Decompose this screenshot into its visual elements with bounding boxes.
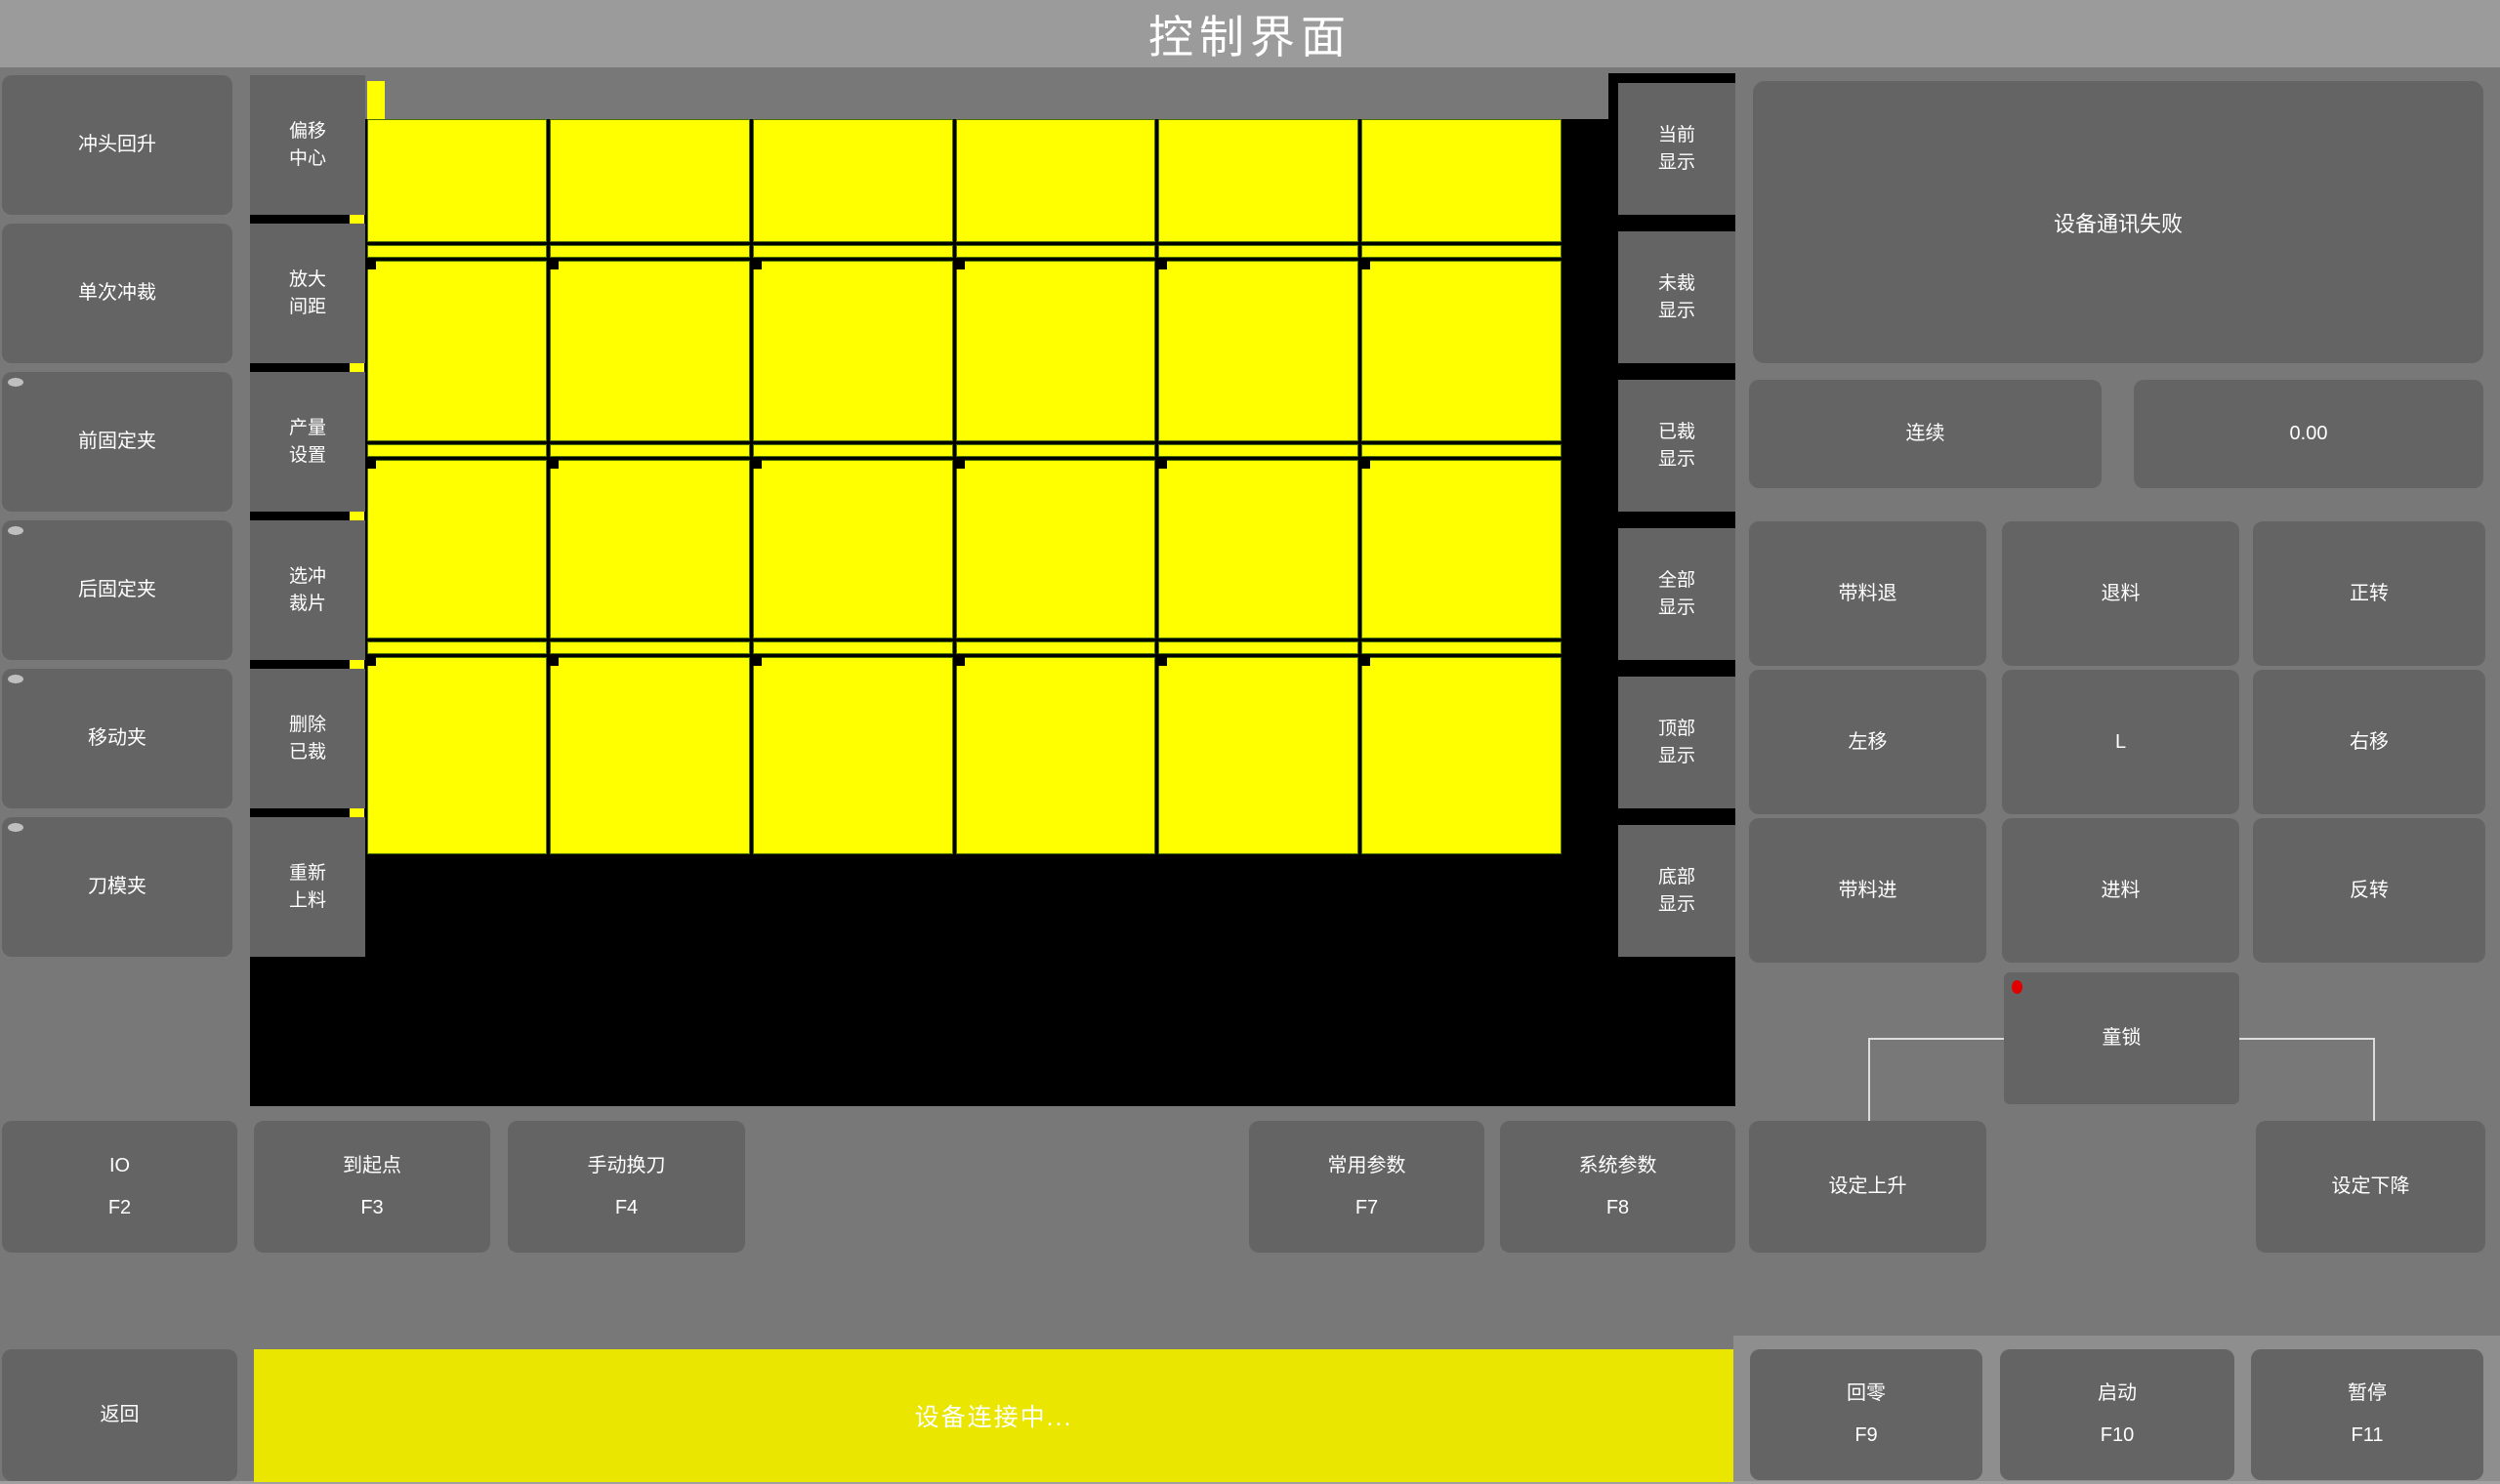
button-label: 设定上升 — [1829, 1173, 1907, 1201]
lock-indicator-red-dot — [2012, 980, 2022, 994]
indicator-dot — [8, 675, 23, 683]
button-fkey: F9 — [1854, 1422, 1877, 1450]
material-piece[interactable] — [1361, 119, 1562, 242]
set-rise-button[interactable]: 设定上升 — [1749, 1121, 1986, 1253]
move-left-button[interactable]: 左移 — [1749, 670, 1986, 814]
scrap-strip[interactable] — [550, 444, 750, 457]
child-lock-button[interactable]: 童锁 — [2004, 972, 2239, 1104]
material-top-notch — [367, 81, 385, 119]
material-piece[interactable] — [1158, 657, 1358, 854]
button-label: 常用参数 — [1328, 1152, 1406, 1180]
scrap-strip[interactable] — [550, 245, 750, 258]
select-piece-button[interactable]: 选冲 裁片 — [250, 520, 365, 660]
material-piece[interactable] — [550, 119, 750, 242]
button-label: 放大 间距 — [289, 267, 326, 320]
button-label: 右移 — [2350, 728, 2389, 757]
set-fall-button[interactable]: 设定下降 — [2256, 1121, 2485, 1253]
button-label: 后固定夹 — [78, 576, 156, 604]
reload-material-button[interactable]: 重新 上料 — [250, 817, 365, 957]
button-label: 单次冲裁 — [78, 279, 156, 308]
button-label: 暂停 — [2348, 1380, 2387, 1408]
button-label: 到起点 — [343, 1152, 401, 1180]
indicator-dot — [8, 378, 23, 387]
scrap-strip[interactable] — [367, 245, 547, 258]
button-label: 已裁 显示 — [1658, 419, 1695, 473]
button-label: 设定下降 — [2332, 1173, 2410, 1201]
strip-back-button[interactable]: 带料退 — [1749, 521, 1986, 666]
button-label: 反转 — [2350, 877, 2389, 905]
front-clamp-button[interactable]: 前固定夹 — [2, 372, 232, 512]
material-piece[interactable] — [367, 261, 547, 441]
button-label: 回零 — [1847, 1380, 1886, 1408]
button-label: 冲头回升 — [78, 131, 156, 159]
l-button[interactable]: L — [2002, 670, 2239, 814]
wire-right-horizontal — [2239, 1038, 2375, 1040]
connection-status-text: 设备连接中... — [915, 1398, 1073, 1433]
button-label: 刀模夹 — [88, 873, 146, 901]
material-piece[interactable] — [956, 460, 1156, 639]
button-label: IO — [109, 1152, 130, 1180]
material-piece[interactable] — [550, 460, 750, 639]
button-label: 带料进 — [1839, 877, 1897, 905]
layout-canvas — [250, 73, 1735, 1106]
button-label: 童锁 — [2103, 1024, 2142, 1052]
eject-material-button[interactable]: 退料 — [2002, 521, 2239, 666]
moving-clamp-button[interactable]: 移动夹 — [2, 669, 232, 808]
button-label: 连续 — [1906, 420, 1945, 448]
indicator-dot — [8, 823, 23, 832]
scrap-strip[interactable] — [550, 641, 750, 654]
indicator-dot — [8, 526, 23, 535]
scrap-strip[interactable] — [956, 245, 1156, 258]
pieces-grid[interactable] — [367, 119, 1562, 854]
button-label: 顶部 显示 — [1658, 716, 1695, 769]
material-piece[interactable] — [1361, 657, 1562, 854]
button-label: 底部 显示 — [1658, 864, 1695, 918]
scrap-strip[interactable] — [367, 444, 547, 457]
button-label: 未裁 显示 — [1658, 270, 1695, 324]
button-label: 进料 — [2102, 877, 2141, 905]
material-piece[interactable] — [1361, 460, 1562, 639]
button-fkey: F2 — [108, 1194, 131, 1222]
button-label: 返回 — [101, 1401, 140, 1429]
material-piece[interactable] — [753, 460, 953, 639]
button-fkey: F7 — [1355, 1194, 1378, 1222]
move-right-button[interactable]: 右移 — [2253, 670, 2485, 814]
feed-material-button[interactable]: 进料 — [2002, 818, 2239, 963]
material-piece[interactable] — [367, 657, 547, 854]
material-piece[interactable] — [753, 119, 953, 242]
material-piece[interactable] — [956, 657, 1156, 854]
material-piece[interactable] — [367, 460, 547, 639]
common-params-f7-button[interactable]: 常用参数 F7 — [1249, 1121, 1484, 1253]
button-label: 产量 设置 — [289, 415, 326, 469]
reverse-rotate-button[interactable]: 反转 — [2253, 818, 2485, 963]
scrap-strip[interactable] — [1158, 444, 1358, 457]
wire-right-vertical — [2373, 1038, 2375, 1121]
start-f10-button[interactable]: 启动 F10 — [2000, 1349, 2234, 1480]
button-label: 带料退 — [1839, 580, 1897, 608]
scrap-strip[interactable] — [956, 444, 1156, 457]
button-fkey: F4 — [615, 1194, 638, 1222]
scrap-strip[interactable] — [753, 444, 953, 457]
strip-feed-button[interactable]: 带料进 — [1749, 818, 1986, 963]
home-f9-button[interactable]: 回零 F9 — [1750, 1349, 1982, 1480]
button-fkey: F11 — [2352, 1422, 2384, 1450]
control-screen: 控制界面 冲头回升 单次冲裁 前固定夹 后固定夹 移动夹 刀模夹 偏移 中心 放… — [0, 0, 2500, 1484]
button-fkey: F10 — [2101, 1422, 2134, 1450]
io-f2-button[interactable]: IO F2 — [2, 1121, 237, 1253]
material-piece[interactable] — [1158, 460, 1358, 639]
system-params-f8-button[interactable]: 系统参数 F8 — [1500, 1121, 1735, 1253]
value-display[interactable]: 0.00 — [2134, 380, 2483, 488]
button-label: 重新 上料 — [289, 860, 326, 914]
page-title: 控制界面 — [1148, 2, 1352, 66]
output-settings-button[interactable]: 产量 设置 — [250, 372, 365, 512]
single-punch-button[interactable]: 单次冲裁 — [2, 224, 232, 363]
button-label: 左移 — [1849, 728, 1888, 757]
button-label: 系统参数 — [1579, 1152, 1657, 1180]
button-label: 移动夹 — [88, 724, 146, 753]
zoom-spacing-button[interactable]: 放大 间距 — [250, 224, 365, 363]
show-all-button[interactable]: 全部 显示 — [1618, 528, 1735, 660]
scrap-strip[interactable] — [753, 245, 953, 258]
scrap-strip[interactable] — [1361, 444, 1562, 457]
button-label: 删除 已裁 — [289, 712, 326, 765]
value-text: 0.00 — [2290, 420, 2328, 448]
button-label: 启动 — [2098, 1380, 2137, 1408]
back-button[interactable]: 返回 — [2, 1349, 237, 1481]
material-piece[interactable] — [367, 119, 547, 242]
material-piece[interactable] — [1158, 119, 1358, 242]
scrap-strip[interactable] — [1361, 641, 1562, 654]
button-label: 正转 — [2350, 580, 2389, 608]
button-label: 偏移 中心 — [289, 118, 326, 172]
button-label: L — [2115, 728, 2126, 757]
show-current-button[interactable]: 当前 显示 — [1618, 83, 1735, 215]
material-piece[interactable] — [956, 119, 1156, 242]
button-label: 退料 — [2102, 580, 2141, 608]
material-piece[interactable] — [753, 657, 953, 854]
button-label: 当前 显示 — [1658, 122, 1695, 176]
show-bottom-button[interactable]: 底部 显示 — [1618, 825, 1735, 957]
delete-cut-button[interactable]: 删除 已裁 — [250, 669, 365, 808]
button-label: 手动换刀 — [588, 1152, 666, 1180]
forward-rotate-button[interactable]: 正转 — [2253, 521, 2485, 666]
button-label: 选冲 裁片 — [289, 563, 326, 617]
scrap-strip[interactable] — [1158, 245, 1358, 258]
status-message-text: 设备通讯失败 — [2054, 207, 2183, 238]
material-piece[interactable] — [550, 261, 750, 441]
show-uncut-button[interactable]: 未裁 显示 — [1618, 231, 1735, 363]
material-piece[interactable] — [1158, 261, 1358, 441]
scrap-strip[interactable] — [1361, 245, 1562, 258]
show-cut-button[interactable]: 已裁 显示 — [1618, 380, 1735, 512]
material-piece[interactable] — [753, 261, 953, 441]
connection-status-bar: 设备连接中... — [254, 1349, 1733, 1482]
offset-center-button[interactable]: 偏移 中心 — [250, 75, 365, 215]
wire-left-vertical — [1868, 1038, 1870, 1121]
scrap-strip[interactable] — [956, 641, 1156, 654]
continuous-mode-button[interactable]: 连续 — [1749, 380, 2102, 488]
material-piece[interactable] — [550, 657, 750, 854]
title-bar: 控制界面 — [0, 0, 2500, 67]
pause-f11-button[interactable]: 暂停 F11 — [2251, 1349, 2483, 1480]
material-piece[interactable] — [956, 261, 1156, 441]
punch-raise-button[interactable]: 冲头回升 — [2, 75, 232, 215]
button-fkey: F3 — [360, 1194, 383, 1222]
manual-tool-change-f4-button[interactable]: 手动换刀 F4 — [508, 1121, 745, 1253]
scrap-strip[interactable] — [1158, 641, 1358, 654]
scrap-strip[interactable] — [367, 641, 547, 654]
rear-clamp-button[interactable]: 后固定夹 — [2, 520, 232, 660]
button-label: 前固定夹 — [78, 428, 156, 456]
scrap-strip[interactable] — [753, 641, 953, 654]
button-label: 全部 显示 — [1658, 567, 1695, 621]
die-clamp-button[interactable]: 刀模夹 — [2, 817, 232, 957]
show-top-button[interactable]: 顶部 显示 — [1618, 677, 1735, 808]
device-status-message: 设备通讯失败 — [1753, 81, 2483, 363]
material-view[interactable] — [350, 119, 1562, 854]
button-fkey: F8 — [1606, 1194, 1629, 1222]
canvas-empty-area — [250, 73, 1608, 119]
wire-left-horizontal — [1868, 1038, 2004, 1040]
go-origin-f3-button[interactable]: 到起点 F3 — [254, 1121, 490, 1253]
material-piece[interactable] — [1361, 261, 1562, 441]
